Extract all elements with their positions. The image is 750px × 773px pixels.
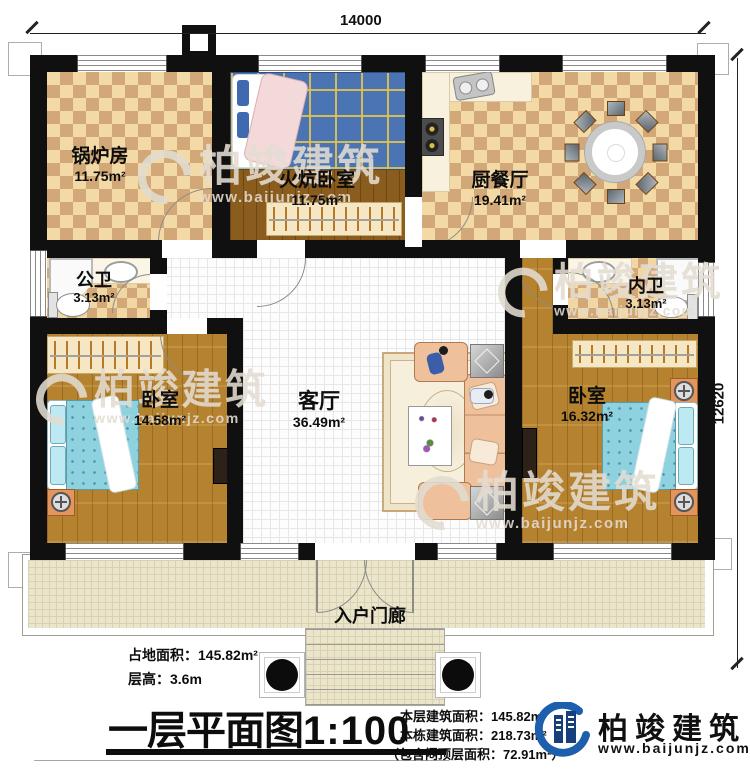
sink-basin (458, 80, 473, 95)
window (258, 55, 362, 72)
site-area-text: 占地面积：145.82m² (128, 645, 258, 665)
dimension-line-right (737, 58, 738, 668)
bed-pillow (50, 405, 66, 444)
room-name: 内卫 (604, 276, 688, 297)
room-area: 19.41m² (440, 192, 560, 208)
room-label-public-bath: 公卫 3.13m² (52, 270, 136, 306)
coffee-table (408, 406, 452, 466)
brand-website: www.baijunjz.com (598, 740, 750, 756)
bed-pillow (678, 407, 694, 445)
window (425, 55, 500, 72)
person-head (484, 390, 493, 399)
room-name: 火炕卧室 (252, 170, 382, 192)
room-label-left-bedroom: 卧室 14.58m² (115, 390, 205, 428)
room-label-right-bedroom: 卧室 16.32m² (532, 386, 642, 424)
side-table (470, 344, 504, 378)
entry-steps (305, 628, 445, 706)
door-opening (150, 274, 167, 310)
door-opening (405, 197, 422, 247)
wall (150, 258, 167, 274)
wardrobe (47, 336, 164, 374)
wall (30, 240, 162, 258)
side-table (470, 486, 504, 520)
room-label-living-room: 客厅 36.49m² (264, 390, 374, 430)
dining-chair (565, 144, 580, 162)
floor-height-text: 层高：3.6m (128, 669, 202, 689)
entry-door-opening (315, 543, 415, 560)
wall (505, 258, 522, 543)
door-opening (257, 240, 305, 258)
wall (212, 55, 230, 240)
room-name: 卧室 (115, 390, 205, 412)
dining-chair (607, 189, 625, 204)
room-name: 客厅 (264, 390, 374, 414)
door-opening (162, 240, 212, 258)
person-figure (464, 384, 494, 406)
room-area: 11.75m² (252, 192, 382, 208)
room-name: 厨餐厅 (440, 170, 560, 192)
toilet-tank (687, 294, 698, 320)
lamp (674, 381, 694, 401)
sink-basin (475, 77, 490, 92)
bed-pillow (678, 447, 694, 485)
lamp (674, 492, 694, 512)
bed-pillow (50, 446, 66, 485)
brand-logo-icon (534, 702, 592, 760)
wardrobe (572, 340, 697, 368)
dimension-width-label: 14000 (340, 12, 382, 29)
dining-table (585, 122, 645, 182)
entry-door-leaf (316, 560, 318, 612)
wall (422, 240, 520, 258)
room-label-kang-bedroom: 火炕卧室 11.75m² (252, 170, 382, 208)
room-name: 锅炉房 (50, 146, 150, 168)
wall (405, 55, 422, 197)
window (77, 55, 167, 72)
column-core (442, 659, 474, 691)
entry-door-leaf (412, 560, 414, 612)
dimension-height-label: 12620 (710, 383, 727, 425)
room-area: 11.75m² (50, 168, 150, 184)
column-core (266, 659, 298, 691)
wall (212, 240, 257, 258)
wall (405, 247, 422, 258)
wall (553, 319, 698, 334)
wall (30, 318, 167, 334)
wall (553, 258, 568, 274)
porch-column (259, 652, 305, 698)
window (698, 262, 715, 317)
room-label-kitchen-dining: 厨餐厅 19.41m² (440, 170, 560, 208)
room-label-entry-porch: 入户门廊 (290, 606, 450, 627)
chimney (182, 25, 216, 59)
room-area: 36.49m² (264, 414, 374, 430)
wall (553, 305, 568, 319)
room-name: 公卫 (52, 270, 136, 291)
plan-title: 一层平面图1:100 (108, 698, 410, 756)
plan-title-text: 一层平面图 (108, 698, 303, 756)
armchair (418, 482, 472, 520)
window (437, 543, 497, 560)
dining-chair (607, 101, 625, 116)
tv-cabinet (522, 428, 537, 478)
room-label-inner-bath: 内卫 3.13m² (604, 276, 688, 312)
window (562, 55, 667, 72)
dining-chair (653, 144, 668, 162)
porch-column (435, 652, 481, 698)
room-label-boiler: 锅炉房 11.75m² (50, 146, 150, 184)
window (553, 543, 672, 560)
stove (420, 118, 444, 156)
room-area: 3.13m² (604, 297, 688, 312)
person-body (426, 351, 446, 375)
window (65, 543, 184, 560)
wall (207, 318, 243, 334)
room-area: 16.32m² (532, 408, 642, 424)
floor-plan: 14000 12620 (0, 0, 750, 773)
room-name: 入户门廊 (290, 606, 450, 627)
sofa-cushion (468, 438, 500, 466)
wall (566, 240, 715, 258)
door-opening (520, 240, 566, 258)
person-figure (428, 346, 452, 376)
tv-cabinet (213, 448, 228, 484)
window (30, 250, 47, 317)
building-area-text: 本栋建筑面积：218.73m² (400, 725, 547, 744)
wall (227, 334, 243, 543)
brand-logo (534, 702, 592, 760)
room-area: 3.13m² (52, 291, 136, 306)
dimension-line-top (30, 33, 706, 34)
lamp (51, 492, 71, 512)
room-area: 14.58m² (115, 412, 205, 428)
floor-area-text: 本层建筑面积：145.82m² (400, 706, 547, 725)
door-opening (553, 274, 568, 305)
door-opening (167, 318, 207, 334)
person-head (439, 346, 448, 355)
window (240, 543, 299, 560)
pillow (237, 80, 249, 106)
room-name: 卧室 (532, 386, 642, 408)
